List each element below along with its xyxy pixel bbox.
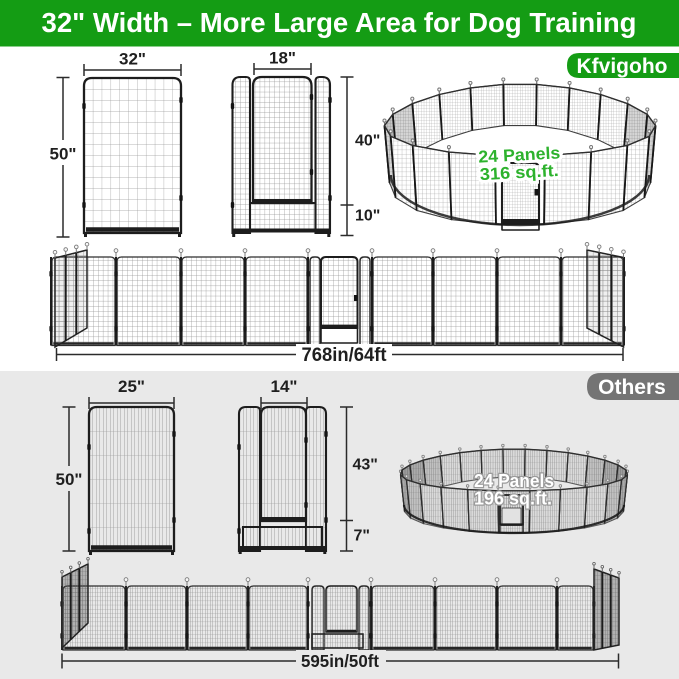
svg-text:32" Width – More Large Area fo: 32" Width – More Large Area for Dog Trai…: [42, 7, 637, 38]
svg-text:7": 7": [354, 528, 370, 545]
svg-text:25": 25": [118, 377, 145, 396]
svg-text:Others: Others: [598, 376, 666, 399]
svg-text:40": 40": [355, 133, 380, 150]
svg-text:595in/50ft: 595in/50ft: [301, 651, 379, 671]
svg-text:32": 32": [119, 50, 146, 69]
svg-text:43": 43": [353, 457, 378, 474]
svg-text:50": 50": [50, 145, 77, 164]
svg-text:768in/64ft: 768in/64ft: [302, 345, 388, 366]
svg-text:196 sq.ft.: 196 sq.ft.: [474, 488, 552, 509]
svg-text:50": 50": [56, 470, 83, 489]
svg-text:14": 14": [271, 377, 298, 396]
svg-text:10": 10": [355, 208, 380, 225]
svg-text:Kfvigoho: Kfvigoho: [577, 55, 668, 78]
svg-text:18": 18": [269, 49, 296, 68]
